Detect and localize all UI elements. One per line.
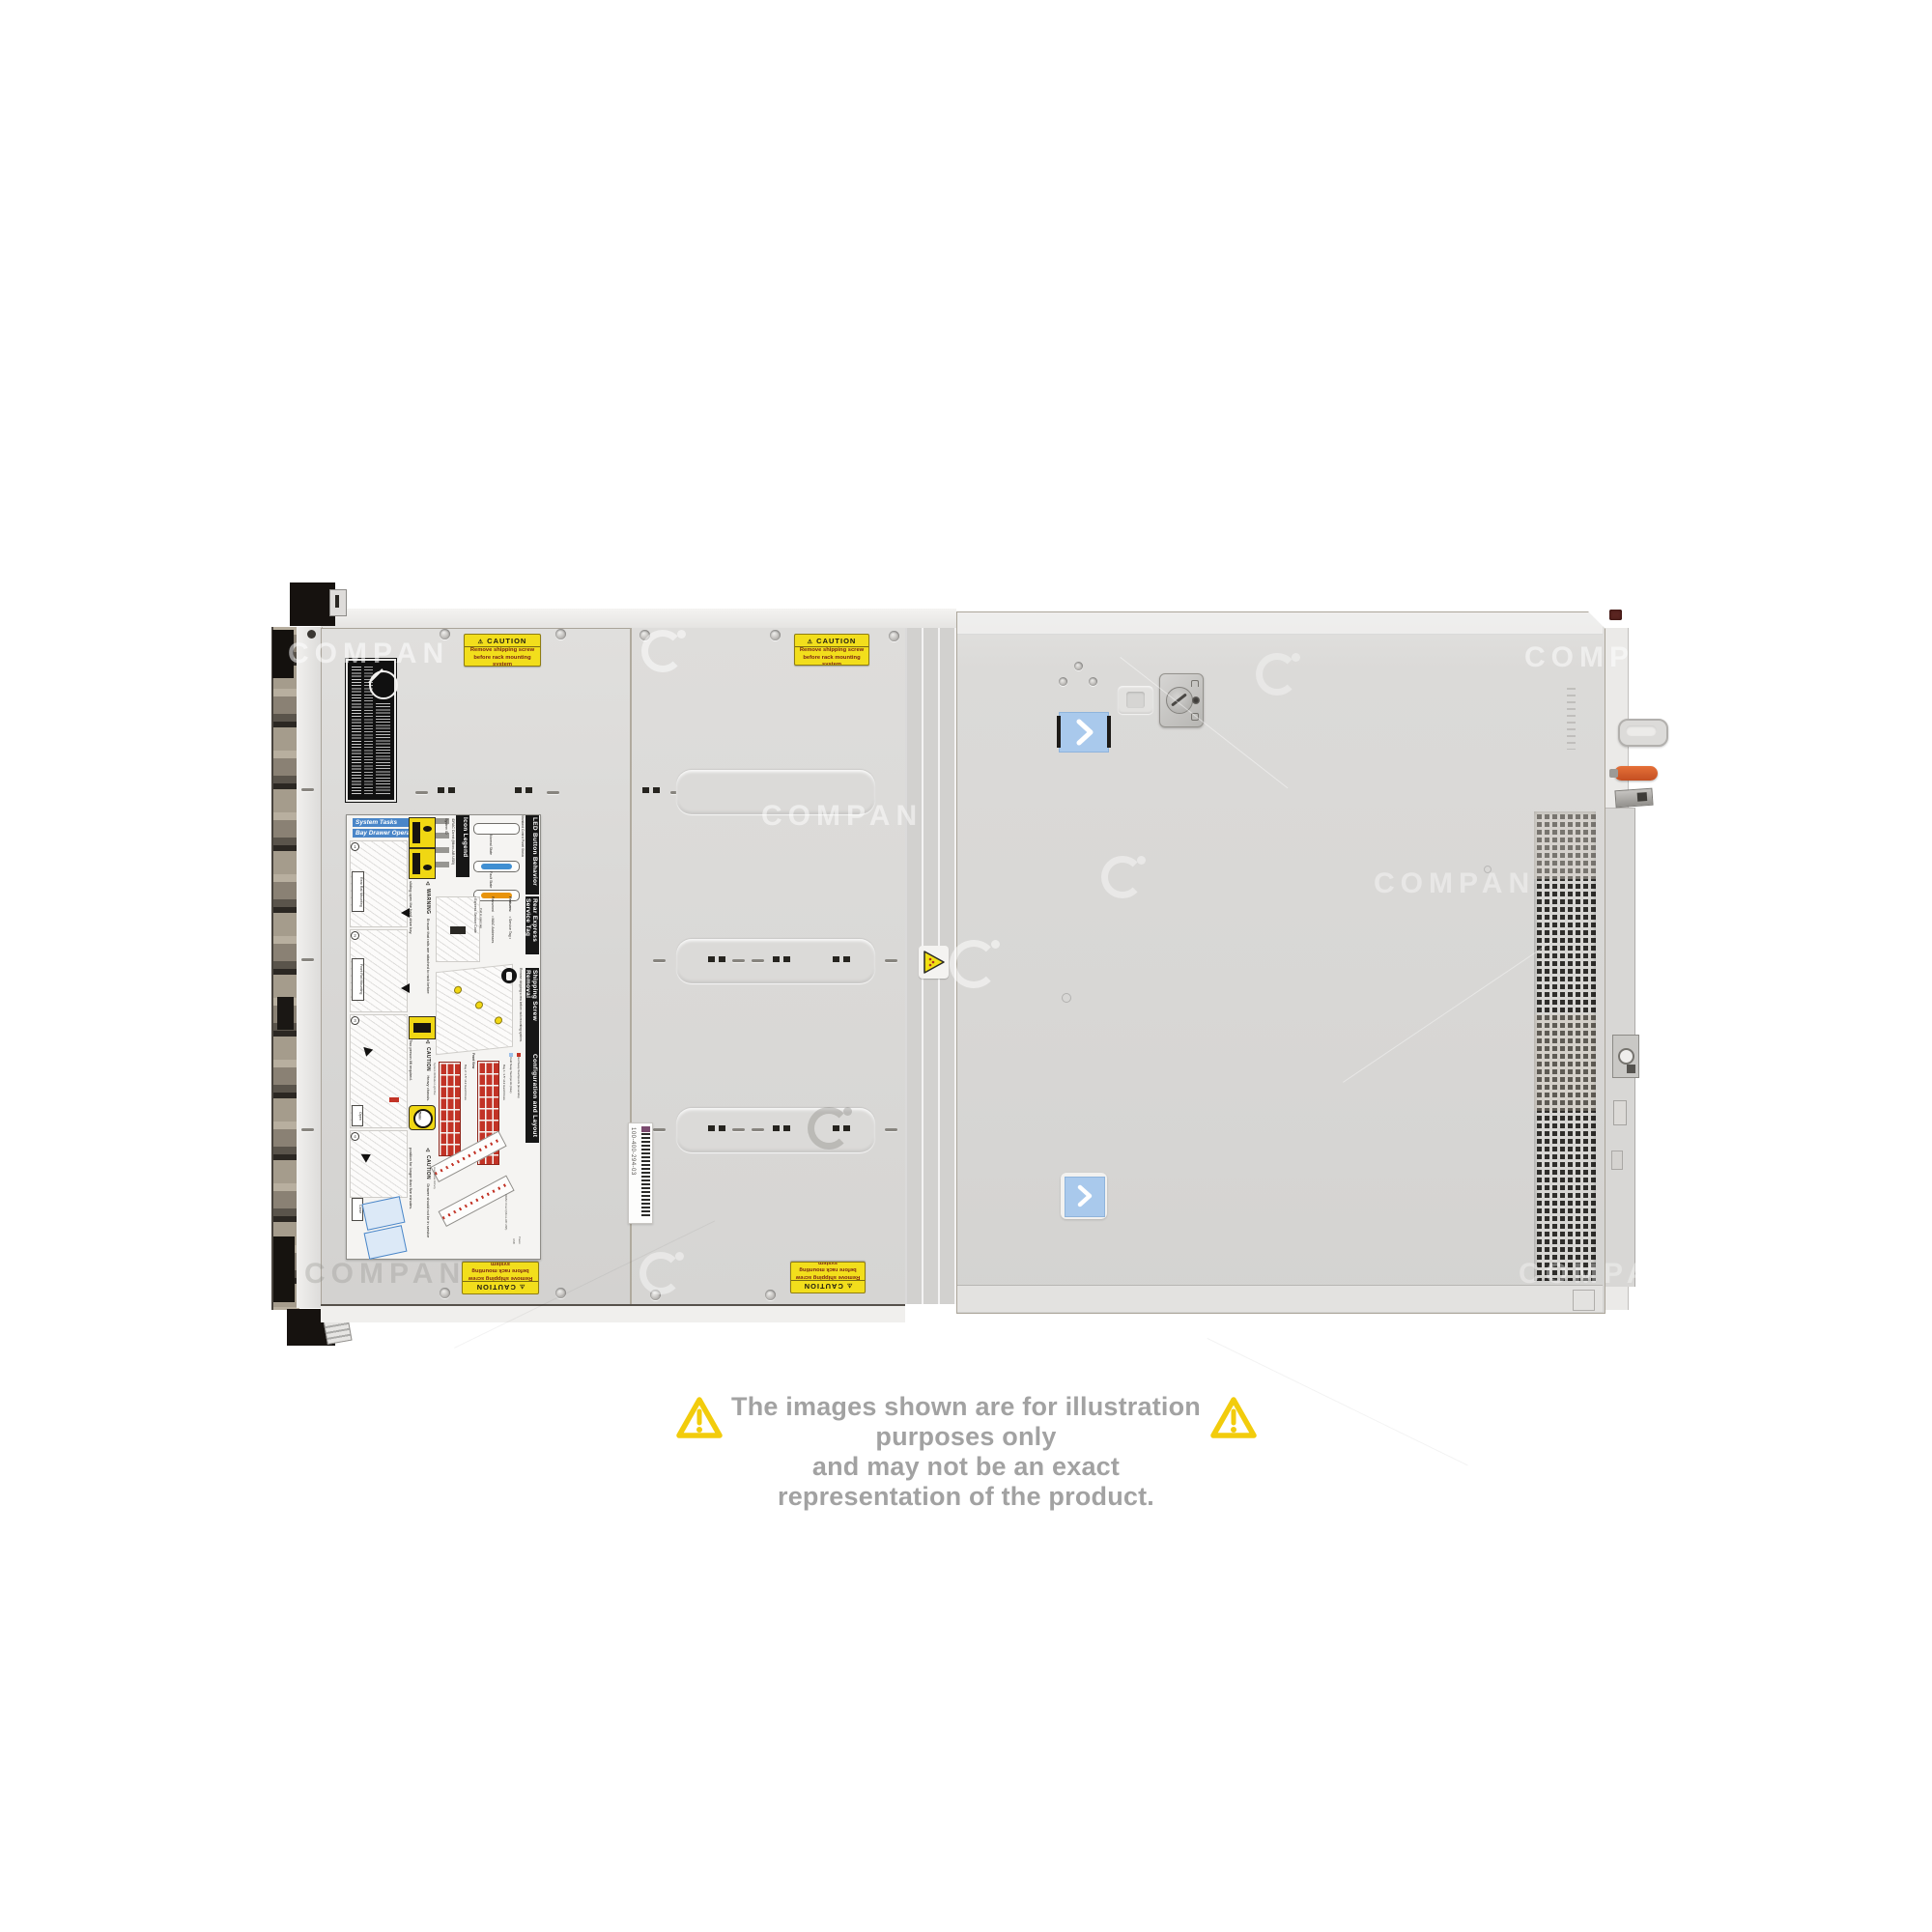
caution-sticker-bottom-middle: ⚠ CAUTION Remove shipping screw before r… xyxy=(790,1262,866,1293)
screw-hole xyxy=(889,631,899,641)
vent-slot-pair xyxy=(773,956,780,962)
front-rim-vent-dash xyxy=(301,788,314,791)
icon-legend-header: Icon Legend xyxy=(456,815,469,877)
vent-dash xyxy=(732,1128,745,1131)
chevron-right-icon xyxy=(1060,713,1108,752)
system-tasks-header: System Tasks xyxy=(353,818,415,827)
rear-express-header: Rear Express Service Tag xyxy=(526,896,539,954)
side-tab xyxy=(1613,1100,1627,1125)
rack-ear-top xyxy=(290,582,335,626)
watermark-text: COMPAN xyxy=(304,1258,466,1291)
vent-dash xyxy=(547,791,559,794)
side-bracket xyxy=(1612,1035,1639,1078)
caution-title: ⚠ CAUTION xyxy=(465,635,540,647)
features-title: Features: xyxy=(508,896,512,912)
handle-slot xyxy=(1626,725,1657,736)
step-number: 1 xyxy=(351,842,359,851)
side-tab xyxy=(1611,1151,1623,1170)
right-cover-bottom-latch-outline xyxy=(1573,1290,1595,1311)
unlock-icon xyxy=(1191,680,1199,687)
screw-top-right xyxy=(1609,610,1622,620)
rear-rail-caption: Rear Rail Mounting xyxy=(352,871,364,912)
led-fault-label: Fault State xyxy=(487,871,493,891)
led-pill-off xyxy=(473,823,520,835)
cover-hole xyxy=(1074,662,1083,670)
watermark-text: COMPAN xyxy=(1519,1258,1680,1291)
disclaimer-warning-triangle-icon xyxy=(1210,1394,1257,1442)
feature-item: • MAC Addresses xyxy=(491,916,495,943)
keylock-pin xyxy=(1192,696,1200,704)
caution-line2: before rack mounting system xyxy=(791,1262,865,1273)
drive-bay-grid xyxy=(439,1062,461,1156)
watermark-ci-logo xyxy=(1256,653,1298,696)
config-annotation: Hard Drive Activity xyxy=(432,1167,437,1235)
step-number: 4 xyxy=(351,1132,359,1141)
disclaimer-warning-triangle-icon xyxy=(676,1394,723,1442)
vent-dash xyxy=(885,959,897,962)
vent-highlight xyxy=(1534,1014,1596,1111)
caution-line1: Remove shipping screw xyxy=(791,1273,865,1281)
caution-line1: Remove shipping screw xyxy=(463,1274,538,1282)
warning-triangle-icon: ⚠ xyxy=(478,639,484,645)
watermark-ci-logo xyxy=(1101,856,1144,898)
barcode-color-mark xyxy=(641,1126,650,1132)
vent-slot-pair xyxy=(833,956,839,962)
disclaimer-text: The images shown are for illustration pu… xyxy=(726,1392,1206,1512)
vent-dash xyxy=(752,1128,764,1131)
led-pill-normal xyxy=(473,861,520,872)
caution-title: ⚠ CAUTION xyxy=(791,1280,865,1293)
config-annotation: Power xyxy=(517,1236,522,1254)
regulatory-micro-text xyxy=(376,703,390,794)
bracket-hole xyxy=(1618,1048,1634,1065)
orange-latch-lever[interactable] xyxy=(1614,766,1658,781)
release-handle[interactable] xyxy=(1618,719,1668,747)
watermark-text: COMPAN xyxy=(1374,867,1535,900)
screw-hole xyxy=(770,630,781,640)
vent-slot-pair xyxy=(708,956,715,962)
chassis-bottom-rim xyxy=(321,1304,905,1322)
vent-dash xyxy=(653,959,666,962)
watermark-text: COMPAN xyxy=(1524,641,1686,674)
door-open-illustration xyxy=(364,1225,408,1260)
watermark-text: COMPAN xyxy=(288,638,449,670)
top-cover-right-panel xyxy=(956,611,1605,1314)
led-subtitle: Standard Control Panel Status xyxy=(520,815,525,891)
configuration-header: Configuration and Layout xyxy=(526,1052,539,1143)
front-rim xyxy=(297,627,323,1308)
caution-line2: before rack mounting system xyxy=(795,655,868,667)
drawer-illustration xyxy=(350,1130,408,1198)
watermark-ci-logo xyxy=(950,940,998,988)
front-rim-vent-dash xyxy=(301,1128,314,1131)
slide-direction-sticker-top xyxy=(1059,712,1109,753)
chevron-right-icon xyxy=(1061,1173,1107,1219)
metal-clip xyxy=(1614,788,1653,809)
warning-triangle-icon: ⚠ xyxy=(519,1283,525,1289)
watermark-ci-logo xyxy=(639,1252,682,1294)
clip-detail xyxy=(1637,792,1648,802)
front-bezel-corrugation xyxy=(271,627,299,1310)
regulatory-label xyxy=(345,658,397,803)
caution-title: ⚠ CAUTION xyxy=(463,1281,538,1293)
front-view-label: Front View xyxy=(470,1053,475,1095)
pinch-warning-sticker xyxy=(919,946,949,979)
front-bezel-dark-mid xyxy=(277,997,294,1030)
step-number: 3 xyxy=(351,1016,359,1025)
tip-hazard-pictogram xyxy=(409,848,436,879)
touchpoint-red-dot xyxy=(389,1097,399,1102)
rack-ear-top-slot xyxy=(335,595,339,608)
slide-direction-sticker-bottom xyxy=(1061,1173,1107,1219)
close-caption: Close xyxy=(352,1198,363,1221)
embossed-release-button-inner xyxy=(1126,692,1145,708)
vent-slot-pair xyxy=(438,787,444,793)
icon-legend-item: System ID xyxy=(442,818,448,872)
screw-hole xyxy=(555,629,566,639)
cover-hole xyxy=(1089,677,1097,686)
tip-hazard-pictogram xyxy=(409,817,436,848)
front-rim-vent-dash xyxy=(301,958,314,961)
regulatory-micro-text xyxy=(352,667,361,794)
five-min-text: 5min xyxy=(417,1112,421,1120)
warning-triangle-icon xyxy=(919,946,949,979)
shipping-screw-body: Remove shipping screw before rack mounti… xyxy=(514,968,523,1049)
barcode-stripes xyxy=(641,1133,650,1216)
features-block: Features: • Service Tag • Password • MAC… xyxy=(484,896,519,945)
vent-dash xyxy=(885,1128,897,1131)
vent-slot-pair xyxy=(773,1125,780,1131)
caution-line1: Remove shipping screw xyxy=(465,647,540,655)
vent-slot-pair xyxy=(642,787,649,793)
disclaimer-line2: and may not be an exact representation o… xyxy=(726,1452,1206,1512)
vent-slot-pair xyxy=(515,787,522,793)
feature-item: • Express Service Code xyxy=(473,896,477,933)
led-header: LED Button Behavior xyxy=(526,815,539,895)
vent-dash xyxy=(732,959,745,962)
config-annotation: System ID/Status Light Bar xyxy=(432,1063,437,1155)
caution-line2: before rack mounting system xyxy=(465,655,540,668)
latch-tip xyxy=(1609,769,1618,778)
caution-title: ⚠ CAUTION xyxy=(795,635,868,647)
warning-triangle-icon: ⚠ xyxy=(808,639,813,645)
cover-keylock[interactable] xyxy=(1159,673,1204,727)
right-cover-bottom-band xyxy=(957,1285,1603,1312)
caution-sticker-top-left: ⚠ CAUTION Remove shipping screw before r… xyxy=(464,634,541,667)
screw-faint xyxy=(1062,993,1071,1003)
disclaimer-line1: The images shown are for illustration pu… xyxy=(726,1392,1206,1452)
vent-dash xyxy=(752,959,764,962)
config-annotation: iDRAC Direct (Micro-AB USB) xyxy=(503,1194,508,1252)
no-stacking-icon xyxy=(369,670,398,699)
heavy-weight-pictogram xyxy=(409,1016,436,1039)
caution-sticker-bottom-left: ⚠ CAUTION Remove shipping screw before r… xyxy=(462,1262,539,1294)
side-vent-grid xyxy=(1534,811,1596,1281)
config-annotation: USB xyxy=(511,1238,516,1254)
right-cover-top-band xyxy=(957,612,1603,635)
warning-triangle-icon: ⚠ xyxy=(846,1282,852,1288)
vent-slot-pair xyxy=(708,1125,715,1131)
bracket-notch xyxy=(1627,1065,1635,1073)
icon-legend-item: iDRAC Direct (Micro-AB USB) xyxy=(449,818,455,872)
barcode-text: 100-400-294-03 xyxy=(630,1127,636,1176)
watermark-text: COMPAN xyxy=(761,800,923,833)
vent-dash xyxy=(653,1128,666,1131)
watermark-ci-logo xyxy=(808,1107,850,1150)
screw-hole xyxy=(765,1290,776,1300)
step-number: 2 xyxy=(351,931,359,940)
cover-hole xyxy=(1059,677,1067,686)
front-rail-caption: Front Rail Mounting xyxy=(352,958,364,1001)
caution-title: ⚠ CAUTION xyxy=(425,1039,431,1071)
front-bezel-dark-bottom xyxy=(273,1236,295,1302)
vent-highlight xyxy=(1534,811,1596,879)
screw-highlight xyxy=(495,1016,502,1025)
legend-cold: Cold Swap Touchpoints (blue) xyxy=(507,1053,513,1138)
barcode-label: 100-400-294-03 xyxy=(628,1122,653,1224)
hot-swatch xyxy=(517,1053,521,1057)
vent-dash xyxy=(415,791,428,794)
led-normal-label: Normal State xyxy=(487,835,493,860)
screw-highlight xyxy=(454,985,462,994)
caution-line2: before rack mounting system xyxy=(463,1262,538,1274)
service-info-label: System Tasks Bay Drawer Operation Rear R… xyxy=(346,814,541,1260)
caution-title: ⚠ CAUTION xyxy=(425,1148,431,1179)
warning-text-block: ⚠ WARNING Ensure that rails are attached… xyxy=(408,881,437,997)
caution-sticker-top-middle: ⚠ CAUTION Remove shipping screw before r… xyxy=(794,634,869,666)
embossed-dpn-text xyxy=(1567,688,1576,750)
bay2-label: Bay 2: 3.5" x12 Hard Drives xyxy=(462,1065,468,1157)
open-caption: Open xyxy=(352,1105,363,1126)
screw-highlight xyxy=(475,1001,483,1009)
caution-line1: Remove shipping screw xyxy=(795,647,868,655)
pull-tab xyxy=(450,926,466,934)
legend-hot: Hot Swap Touchpoints (terracotta) xyxy=(515,1053,521,1138)
warning-title: ⚠ WARNING xyxy=(425,881,431,914)
cold-swatch xyxy=(509,1053,513,1057)
watermark-ci-logo xyxy=(641,630,684,672)
shipping-screw-header: Shipping Screw Removal xyxy=(526,968,539,1053)
